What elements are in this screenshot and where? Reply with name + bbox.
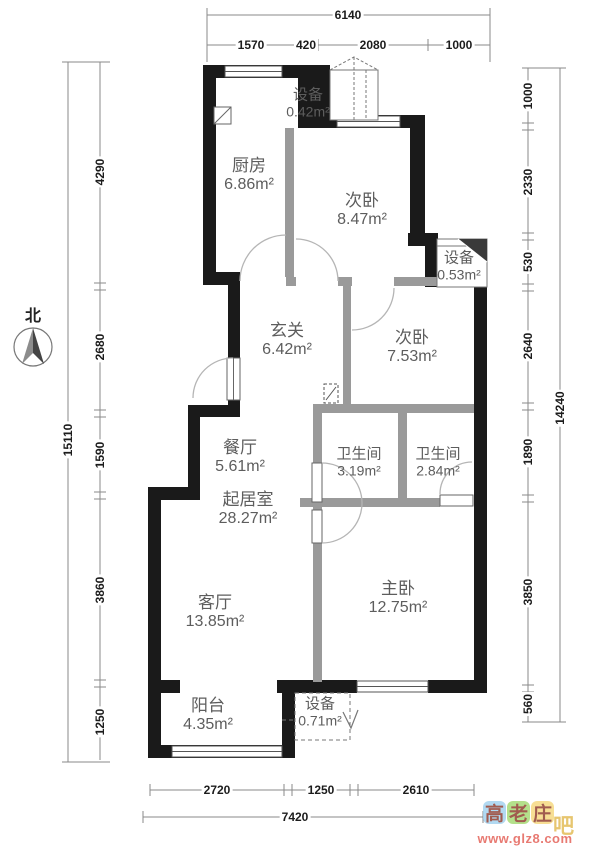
dim-top-4: 1000: [444, 39, 475, 51]
dim-right-5: 1890: [522, 437, 534, 468]
dim-top-total: 6140: [333, 9, 364, 21]
room-label-shaft-right: 设备 0.53m²: [437, 249, 481, 282]
room-label-living-core: 起居室 28.27m²: [219, 490, 278, 528]
dim-right-6: 3850: [522, 577, 534, 608]
room-label-kitchen: 厨房 6.86m²: [224, 156, 274, 194]
dim-bottom-1: 2720: [202, 784, 233, 796]
dim-left-total: 15110: [62, 422, 74, 459]
bathroom1-door-leaf: [312, 510, 322, 543]
dim-left-1: 4290: [94, 157, 106, 188]
room-label-bath2: 卫生间 2.84m²: [415, 445, 460, 478]
watermark-tile-1: 高: [483, 801, 506, 824]
dim-right-3: 530: [522, 250, 534, 274]
dim-left-3: 1590: [94, 440, 106, 471]
room-label-bedroom2-top: 次卧 8.47m²: [337, 191, 387, 229]
dim-bottom-total: 7420: [280, 811, 311, 823]
room-label-shaft-top: 设备 0.42m²: [286, 86, 330, 119]
dim-right-2: 2330: [522, 167, 534, 198]
room-label-living: 客厅 13.85m²: [186, 593, 245, 631]
dim-top-1: 1570: [236, 39, 267, 51]
room-label-bath1: 卫生间 3.19m²: [336, 445, 381, 478]
dim-top-3: 2080: [358, 39, 389, 51]
dim-right-4: 2640: [522, 331, 534, 362]
flue-symbol: [214, 107, 231, 124]
compass-north-label: 北: [25, 302, 41, 326]
room-label-dining: 餐厅 5.61m²: [215, 438, 265, 476]
dim-left-2: 2680: [94, 332, 106, 363]
drain-symbol: [324, 384, 338, 403]
equipment-shafts: [282, 57, 487, 740]
kitchen-door-arc: [240, 235, 286, 281]
room-label-shaft-bottom: 设备 0.71m²: [298, 695, 342, 728]
room-label-master: 主卧 12.75m²: [369, 579, 428, 617]
dim-right-1: 1000: [522, 81, 534, 112]
dim-bottom-3: 2610: [401, 784, 432, 796]
room-label-balcony: 阳台 4.35m²: [183, 696, 233, 734]
bathroom1-door-opening: [312, 463, 322, 502]
bathroom2-door-threshold: [440, 495, 473, 506]
compass-icon: [14, 328, 52, 366]
bedroom2-top-door-arc: [296, 239, 338, 281]
dim-right-total: 14240: [554, 389, 566, 426]
floor-plan: 厨房 6.86m² 次卧 8.47m² 设备 0.42m² 设备 0.53m² …: [0, 0, 600, 850]
dim-right-7: 560: [522, 692, 534, 716]
watermark-url: www.glz8.com: [477, 831, 572, 846]
dim-left-4: 3860: [94, 575, 106, 606]
room-label-hallway: 玄关 6.42m²: [262, 321, 312, 359]
dim-left-5: 1250: [94, 707, 106, 738]
watermark-tile-3: 庄: [531, 801, 554, 824]
dim-bottom-2: 1250: [306, 784, 337, 796]
room-label-bedroom2-mid: 次卧 7.53m²: [387, 328, 437, 366]
bedroom2-mid-door-arc: [352, 288, 394, 330]
dim-top-2: 420: [294, 39, 318, 51]
watermark-tile-2: 老: [507, 801, 530, 824]
